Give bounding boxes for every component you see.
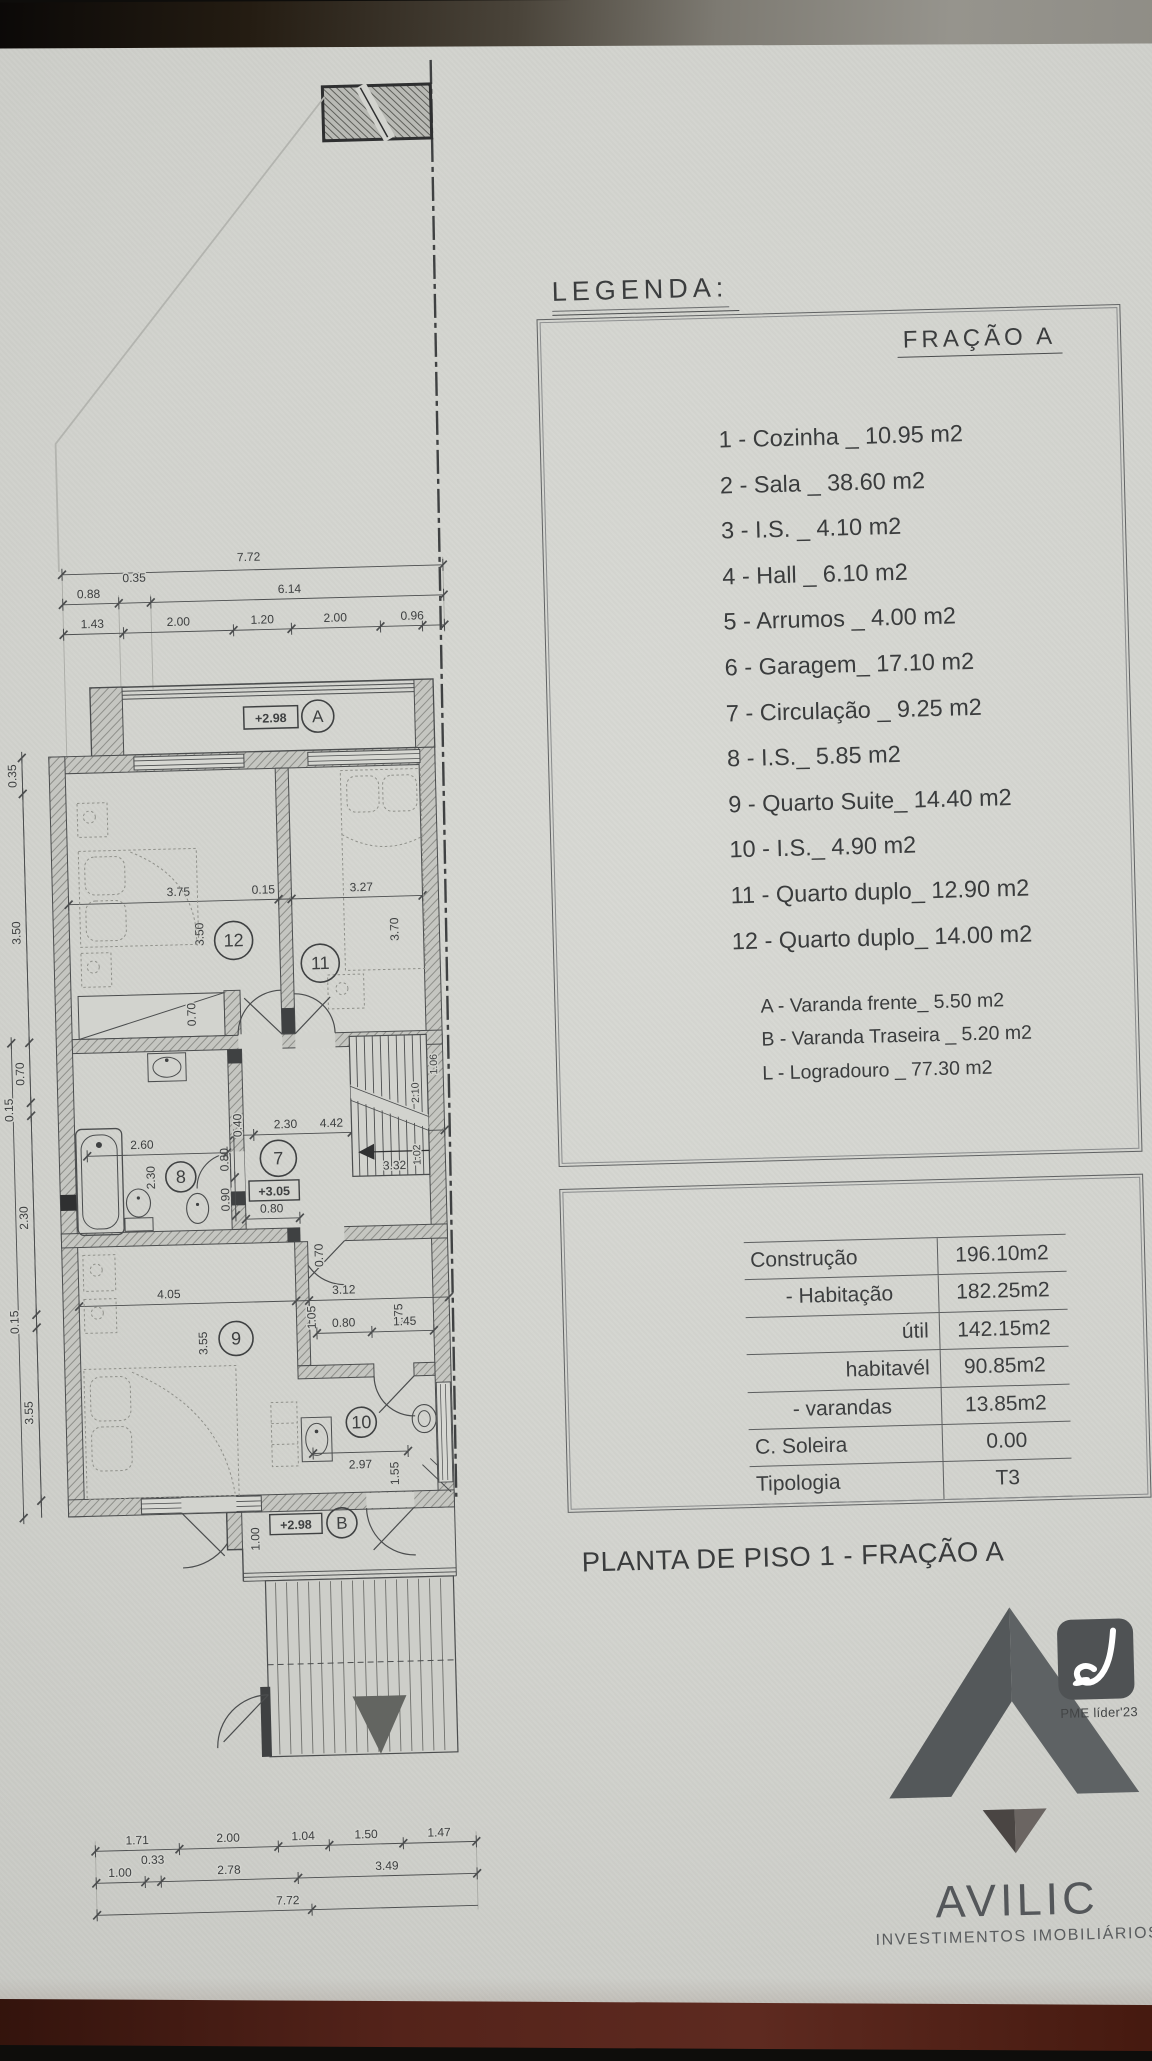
areas-table: Construção196.10m2- Habitação182.25m2úti… (744, 1234, 1073, 1505)
svg-text:B: B (336, 1514, 348, 1533)
legend-subitems-list: A - Varanda frente_ 5.50 m2B - Varanda T… (760, 984, 1033, 1091)
legend-heading: LEGENDA: (551, 272, 739, 316)
svg-text:7.72: 7.72 (276, 1893, 300, 1908)
svg-text:+3.05: +3.05 (258, 1184, 290, 1199)
areas-table-row: TipologiaT3 (750, 1459, 1073, 1505)
areas-table-value: T3 (942, 1459, 1072, 1499)
bedroom-9-furniture (81, 1250, 299, 1499)
svg-text:A: A (312, 707, 324, 726)
svg-text:0.15: 0.15 (7, 1310, 22, 1334)
svg-text:2.97: 2.97 (349, 1457, 373, 1472)
balcony-a: +2.98 A (90, 679, 435, 756)
svg-text:2.78: 2.78 (217, 1863, 241, 1878)
svg-text:2.60: 2.60 (130, 1138, 154, 1153)
svg-text:1.00: 1.00 (108, 1865, 132, 1880)
svg-text:1.71: 1.71 (125, 1833, 149, 1848)
areas-table-value: 13.85m2 (940, 1384, 1070, 1424)
legend-subitem: L - Logradouro _ 77.30 m2 (762, 1050, 1033, 1090)
svg-text:3.12: 3.12 (332, 1282, 356, 1297)
svg-text:0.15: 0.15 (2, 1098, 17, 1122)
areas-table-value: 196.10m2 (936, 1235, 1066, 1275)
bedroom-11-furniture (322, 768, 426, 1008)
svg-text:1.47: 1.47 (427, 1825, 451, 1840)
svg-text:1.05: 1.05 (304, 1305, 319, 1329)
window-top-1 (134, 754, 244, 770)
bottom-dimension-chains: 1.71 2.00 1.04 1.50 1.47 1.00 0.33 2.78 … (91, 1824, 482, 1921)
areas-box: Construção196.10m2- Habitação182.25m2úti… (559, 1174, 1151, 1513)
svg-text:2.00: 2.00 (323, 610, 347, 625)
svg-text:7.72: 7.72 (237, 550, 261, 565)
svg-text:3.55: 3.55 (22, 1401, 37, 1425)
areas-table-label: Construção (744, 1238, 938, 1279)
svg-text:0.70: 0.70 (312, 1243, 327, 1267)
svg-text:2.10: 2.10 (409, 1082, 422, 1103)
areas-table-value: 0.00 (941, 1422, 1071, 1462)
photo-top-edge (0, 0, 1152, 49)
svg-text:1.06: 1.06 (428, 1054, 441, 1075)
svg-text:0.80: 0.80 (260, 1201, 284, 1216)
svg-text:0.96: 0.96 (400, 608, 424, 623)
svg-text:3.49: 3.49 (375, 1858, 399, 1873)
svg-text:10: 10 (351, 1412, 372, 1433)
svg-text:1.20: 1.20 (250, 612, 274, 627)
corridor-bottom-wall (61, 1223, 448, 1292)
legend-item: 3 - I.S. _ 4.10 m2 (721, 501, 1023, 554)
svg-text:9: 9 (231, 1328, 242, 1348)
svg-text:3.50: 3.50 (9, 921, 24, 945)
legend-item: 5 - Arrumos _ 4.00 m2 (723, 592, 1025, 645)
pme-lider-badge-icon (1057, 1618, 1135, 1700)
document-content: 7.72 0.88 0.35 6.14 1.43 2.00 1.20 2.00 … (0, 0, 1152, 2061)
svg-text:1.00: 1.00 (248, 1527, 263, 1551)
svg-text:4.42: 4.42 (320, 1116, 344, 1131)
legend-item: 11 - Quarto duplo_ 12.90 m2 (730, 865, 1032, 918)
svg-text:0.40: 0.40 (230, 1113, 245, 1137)
svg-text:0.88: 0.88 (77, 587, 101, 602)
legend-item: 1 - Cozinha _ 10.95 m2 (718, 410, 1020, 463)
svg-text:1.55: 1.55 (387, 1461, 402, 1485)
legend-item: 9 - Quarto Suite_ 14.40 m2 (728, 774, 1030, 827)
svg-text:2.00: 2.00 (166, 614, 190, 629)
svg-text:8: 8 (176, 1167, 187, 1187)
svg-text:1.43: 1.43 (80, 617, 104, 632)
areas-table-label: Tipologia (750, 1462, 944, 1503)
rooms-dimension-line: 3.75 0.15 3.27 3.50 3.70 (64, 878, 427, 949)
svg-text:0.35: 0.35 (5, 764, 20, 788)
areas-table-value: 90.85m2 (939, 1347, 1069, 1387)
svg-text:3.27: 3.27 (349, 880, 373, 895)
svg-text:6.14: 6.14 (278, 582, 302, 597)
areas-table-label: útil (746, 1313, 940, 1354)
svg-text:3.70: 3.70 (387, 917, 402, 941)
svg-text:4.05: 4.05 (157, 1287, 181, 1302)
svg-text:1.45: 1.45 (393, 1314, 417, 1329)
svg-text:1.04: 1.04 (291, 1829, 315, 1844)
legend-item: 7 - Circulação _ 9.25 m2 (725, 683, 1027, 736)
legend-items-list: 1 - Cozinha _ 10.95 m22 - Sala _ 38.60 m… (718, 410, 1033, 965)
areas-table-value: 142.15m2 (938, 1309, 1068, 1349)
svg-text:2.30: 2.30 (17, 1206, 32, 1230)
entrance-gate-symbol (322, 84, 431, 141)
svg-text:3.55: 3.55 (196, 1331, 211, 1355)
page-title: PLANTA DE PISO 1 - FRAÇÃO A (493, 1533, 1094, 1581)
svg-text:3.75: 3.75 (166, 885, 190, 900)
wardrobe-room-12: 0.70 (78, 990, 241, 1039)
areas-table-value: 182.25m2 (937, 1272, 1067, 1312)
svg-text:0.80: 0.80 (332, 1315, 356, 1330)
plot-boundary-line (47, 97, 337, 572)
logo-name: AVILIC (851, 1870, 1152, 1931)
fraction-label: FRAÇÃO A (896, 323, 1062, 358)
svg-text:+2.98: +2.98 (255, 711, 287, 726)
areas-table-label: C. Soleira (749, 1425, 943, 1466)
svg-text:12: 12 (223, 930, 244, 951)
areas-table-label: habitavél (747, 1350, 941, 1391)
areas-table-label: - varandas (748, 1388, 942, 1429)
table-surface-strip (0, 1999, 1152, 2051)
floor-plan-svg: 7.72 0.88 0.35 6.14 1.43 2.00 1.20 2.00 … (0, 41, 503, 1973)
legend-item: 4 - Hall _ 6.10 m2 (722, 546, 1024, 599)
svg-text:0.35: 0.35 (122, 571, 146, 586)
legend-box: FRAÇÃO A 1 - Cozinha _ 10.95 m22 - Sala … (536, 304, 1142, 1167)
svg-text:11: 11 (311, 953, 330, 973)
svg-text:0.70: 0.70 (184, 1002, 199, 1026)
lower-hall: 0.70 4.05 3.12 1.05 1.75 0.80 1.45 (74, 1238, 455, 1372)
svg-text:0.33: 0.33 (141, 1853, 165, 1868)
svg-text:1.02: 1.02 (411, 1144, 424, 1165)
svg-text:0.90: 0.90 (218, 1188, 233, 1212)
legend-item: 8 - I.S._ 5.85 m2 (726, 729, 1028, 782)
svg-text:0.70: 0.70 (13, 1062, 28, 1086)
svg-text:3.32: 3.32 (383, 1158, 407, 1173)
svg-text:3.50: 3.50 (192, 922, 207, 946)
pme-lider-caption: PME líder'23 (1051, 1704, 1147, 1722)
balcony-b: 1.00 +2.98 B (227, 1505, 457, 1582)
svg-text:2.30: 2.30 (274, 1117, 298, 1132)
legend-item: 10 - I.S._ 4.90 m2 (729, 820, 1031, 873)
legend-item: 2 - Sala _ 38.60 m2 (719, 455, 1021, 508)
legend-item: 12 - Quarto duplo_ 14.00 m2 (731, 911, 1033, 964)
legend-item: 6 - Garagem_ 17.10 m2 (724, 638, 1026, 691)
svg-text:+2.98: +2.98 (280, 1518, 312, 1533)
svg-text:0.15: 0.15 (251, 882, 275, 897)
svg-text:1.50: 1.50 (354, 1827, 378, 1842)
svg-text:2.30: 2.30 (144, 1165, 159, 1189)
areas-table-label: - Habitação (745, 1275, 939, 1316)
garage-ramp (213, 1576, 458, 1758)
svg-text:2.00: 2.00 (216, 1831, 240, 1846)
svg-text:7: 7 (273, 1148, 284, 1168)
window-top-2 (308, 749, 420, 765)
